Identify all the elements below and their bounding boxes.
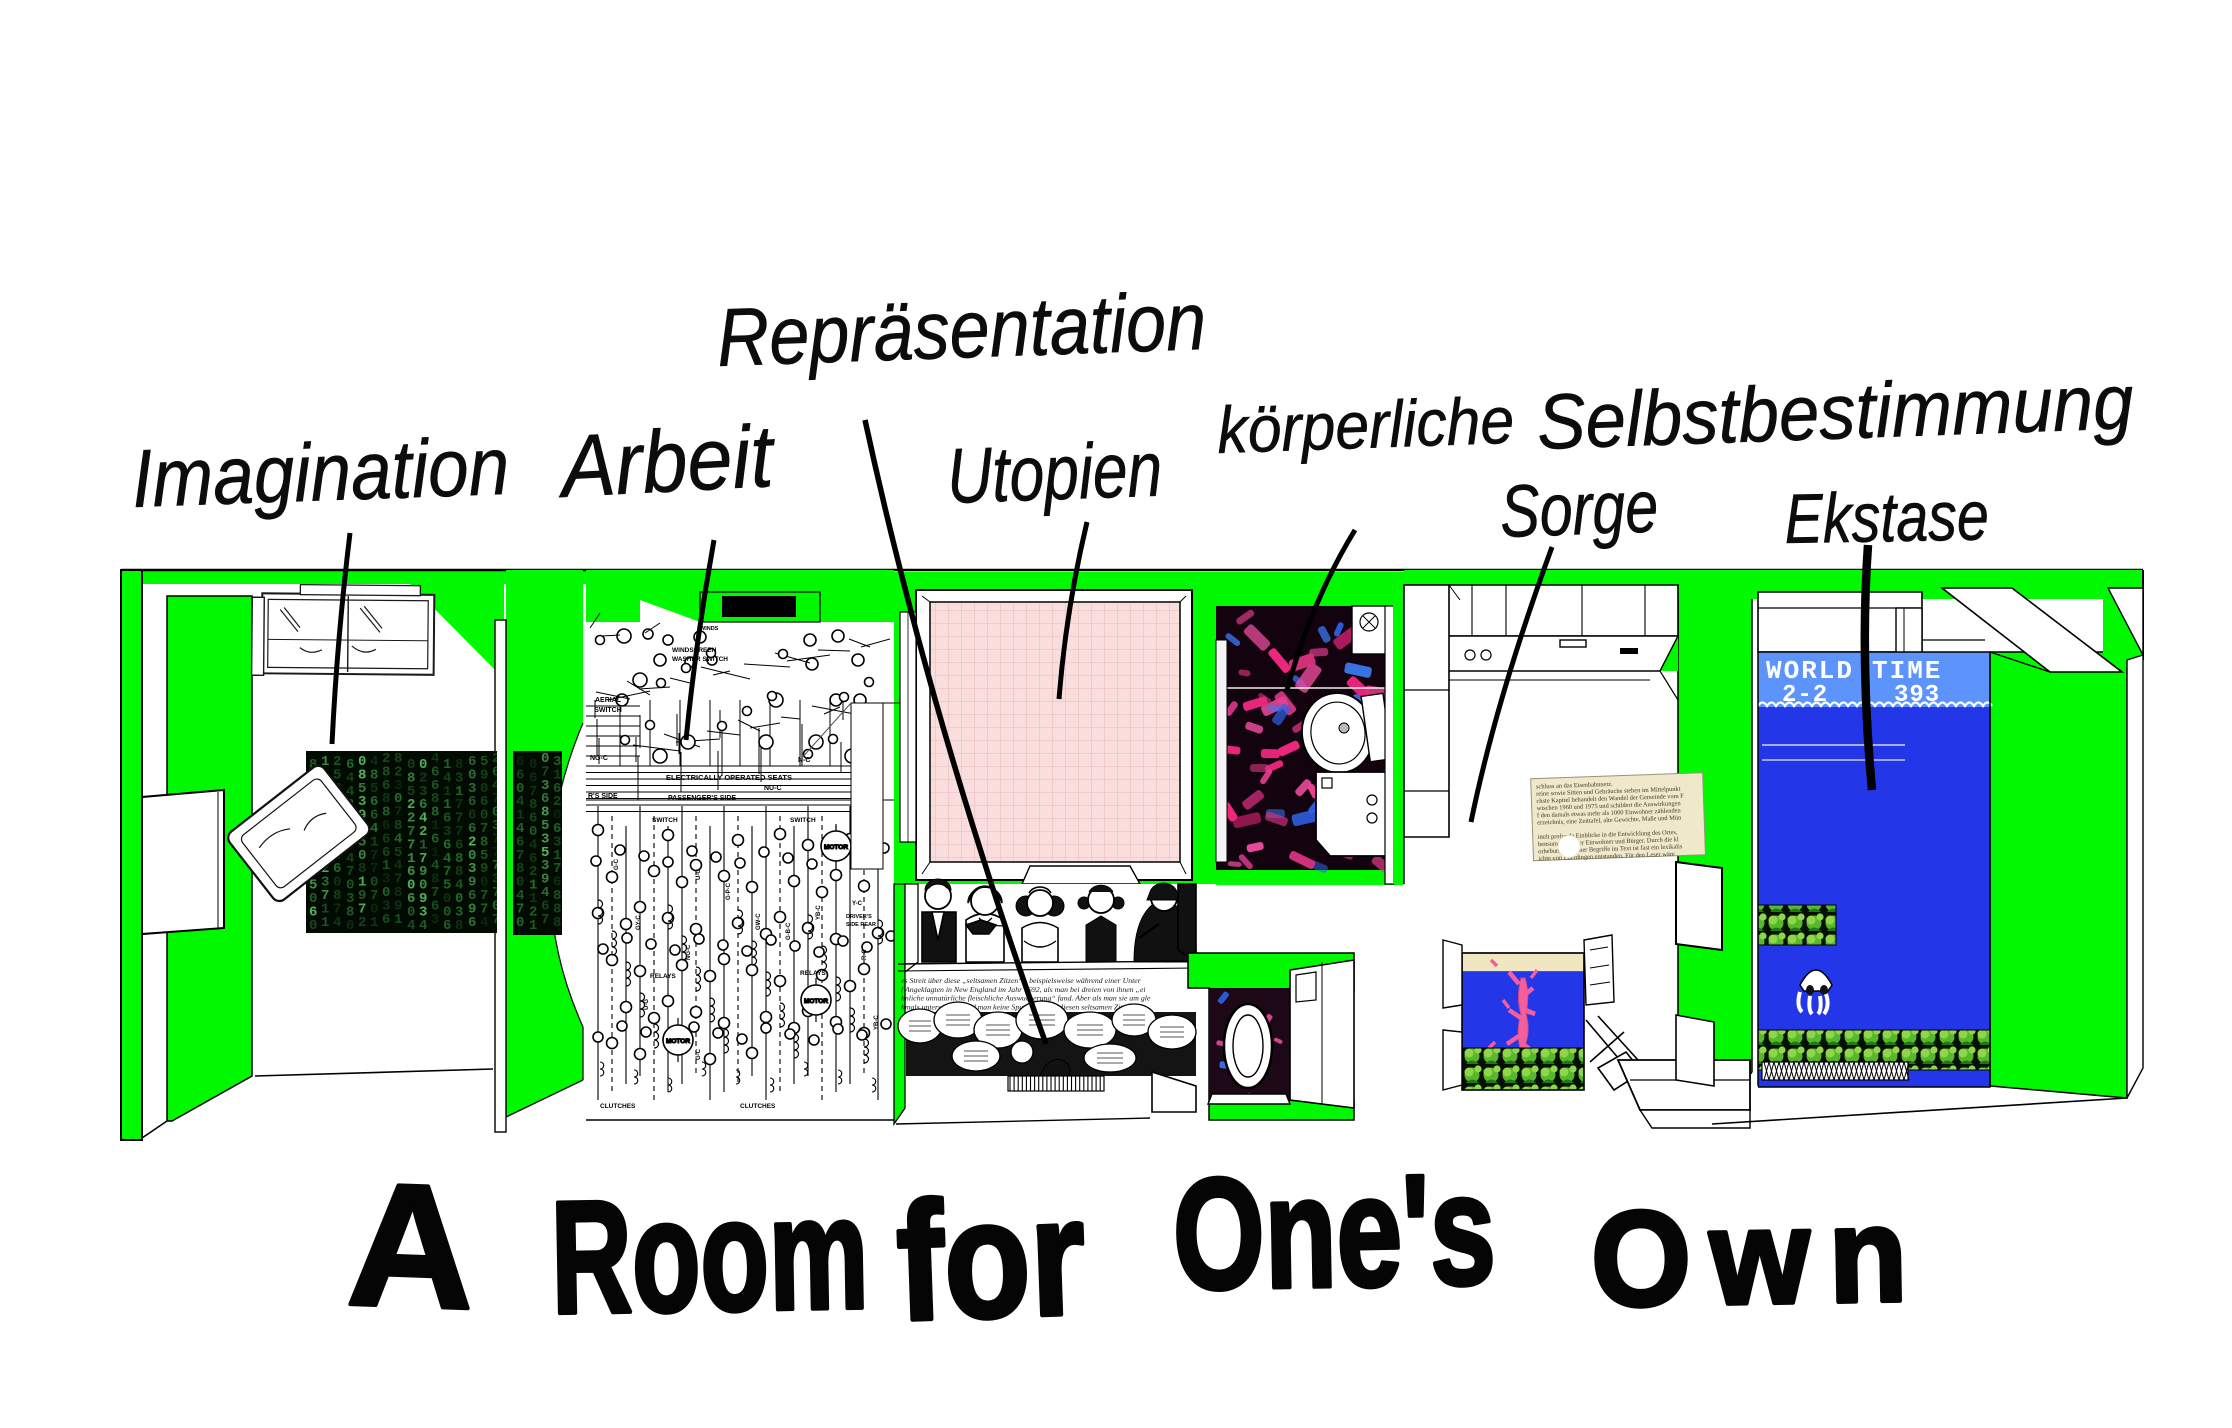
svg-text:GY-C: GY-C (636, 915, 642, 930)
svg-text:G-C: G-C (696, 1048, 702, 1060)
svg-text:ELECTRICALLY OPERATED SEATS: ELECTRICALLY OPERATED SEATS (666, 773, 792, 782)
svg-text:PASSENGER'S SIDE: PASSENGER'S SIDE (668, 795, 736, 802)
svg-text:R'S SIDE: R'S SIDE (588, 793, 618, 800)
svg-text:4856641770701: 4856641770701 (370, 754, 378, 931)
svg-text:MOTOR: MOTOR (824, 844, 848, 851)
svg-text:U-G: U-G (696, 869, 702, 880)
svg-text:Repräsentation: Repräsentation (715, 276, 1207, 384)
svg-text:NU-C: NU-C (764, 785, 782, 792)
svg-text:körperliche: körperliche (1216, 384, 1515, 467)
svg-text:NG-C: NG-C (686, 944, 692, 960)
svg-text:MOTOR: MOTOR (804, 998, 828, 1005)
svg-text:5906078590774: 5906078590774 (480, 754, 488, 931)
svg-text:G-P-C: G-P-C (726, 882, 732, 900)
svg-text:2868866613036: 2868866613036 (382, 751, 390, 928)
svg-text:for: for (894, 1162, 1089, 1356)
svg-text:1411636475006: 1411636475006 (443, 757, 451, 934)
svg-text:Y-C: Y-C (852, 901, 863, 907)
svg-text:SIDE REAR: SIDE REAR (846, 922, 876, 928)
svg-text:R-C: R-C (862, 949, 868, 960)
svg-text:3162063176888: 3162063176888 (553, 754, 561, 931)
svg-text:Room: Room (549, 1164, 869, 1348)
svg-text:RELAYS: RELAYS (650, 973, 676, 980)
svg-text:0678604621121: 0678604621121 (529, 757, 537, 934)
svg-text:N-C: N-C (798, 757, 810, 764)
svg-text:6036662039696: 6036662039696 (468, 754, 476, 931)
svg-text:AERIAL: AERIAL (595, 697, 622, 704)
svg-text:0852277160604: 0852277160604 (407, 757, 415, 934)
svg-text:0853965081972: 0853965081972 (358, 754, 366, 931)
svg-text:0236421790934: 0236421790934 (419, 757, 427, 934)
svg-text:YB-C: YB-C (874, 1015, 880, 1030)
svg-text:WASHER SWITCH: WASHER SWITCH (672, 656, 728, 663)
svg-text:CLUTCHES: CLUTCHES (600, 1103, 636, 1110)
svg-text:One's: One's (1172, 1141, 1497, 1324)
svg-text:U-G: U-G (644, 999, 650, 1010)
svg-text:SWITCH: SWITCH (594, 707, 622, 714)
svg-text:G-B-C: G-B-C (786, 922, 792, 940)
svg-text:Imagination: Imagination (130, 421, 510, 525)
svg-text:8317776884038: 8317776884038 (455, 757, 463, 934)
svg-text:GW-C: GW-C (756, 913, 762, 930)
svg-text:Arbeit: Arbeit (554, 406, 778, 516)
svg-text:DRIVER'S: DRIVER'S (846, 914, 872, 920)
svg-text:SWITCH: SWITCH (790, 817, 816, 824)
svg-text:4668816148763: 4668816148763 (431, 751, 439, 928)
svg-text:0736853539467: 0736853539467 (541, 751, 549, 928)
svg-text:6604146780470: 6604146780470 (516, 754, 524, 931)
svg-text:SWITCH: SWITCH (652, 817, 678, 824)
svg-text:RELAYS: RELAYS (800, 970, 826, 977)
svg-text:A: A (345, 1147, 478, 1346)
svg-text:Utopien: Utopien (946, 425, 1164, 520)
svg-text:NG-C: NG-C (590, 755, 608, 762)
svg-text:Own: Own (1590, 1178, 1927, 1335)
svg-text:CLUTCHES: CLUTCHES (740, 1103, 776, 1110)
svg-text:hmals untersuchte, fand man ke: hmals untersuchte, fand man keine Spur m… (901, 1002, 1136, 1011)
svg-text:8230784547891: 8230784547891 (394, 751, 402, 928)
svg-text:Ekstase: Ekstase (1784, 476, 1989, 558)
svg-text:YB-C: YB-C (816, 905, 822, 920)
svg-text:Sorge: Sorge (1499, 465, 1660, 553)
svg-text:MOTOR: MOTOR (666, 1038, 690, 1045)
svg-text:WINDS: WINDS (700, 626, 719, 632)
svg-text:G-C: G-C (614, 858, 620, 870)
